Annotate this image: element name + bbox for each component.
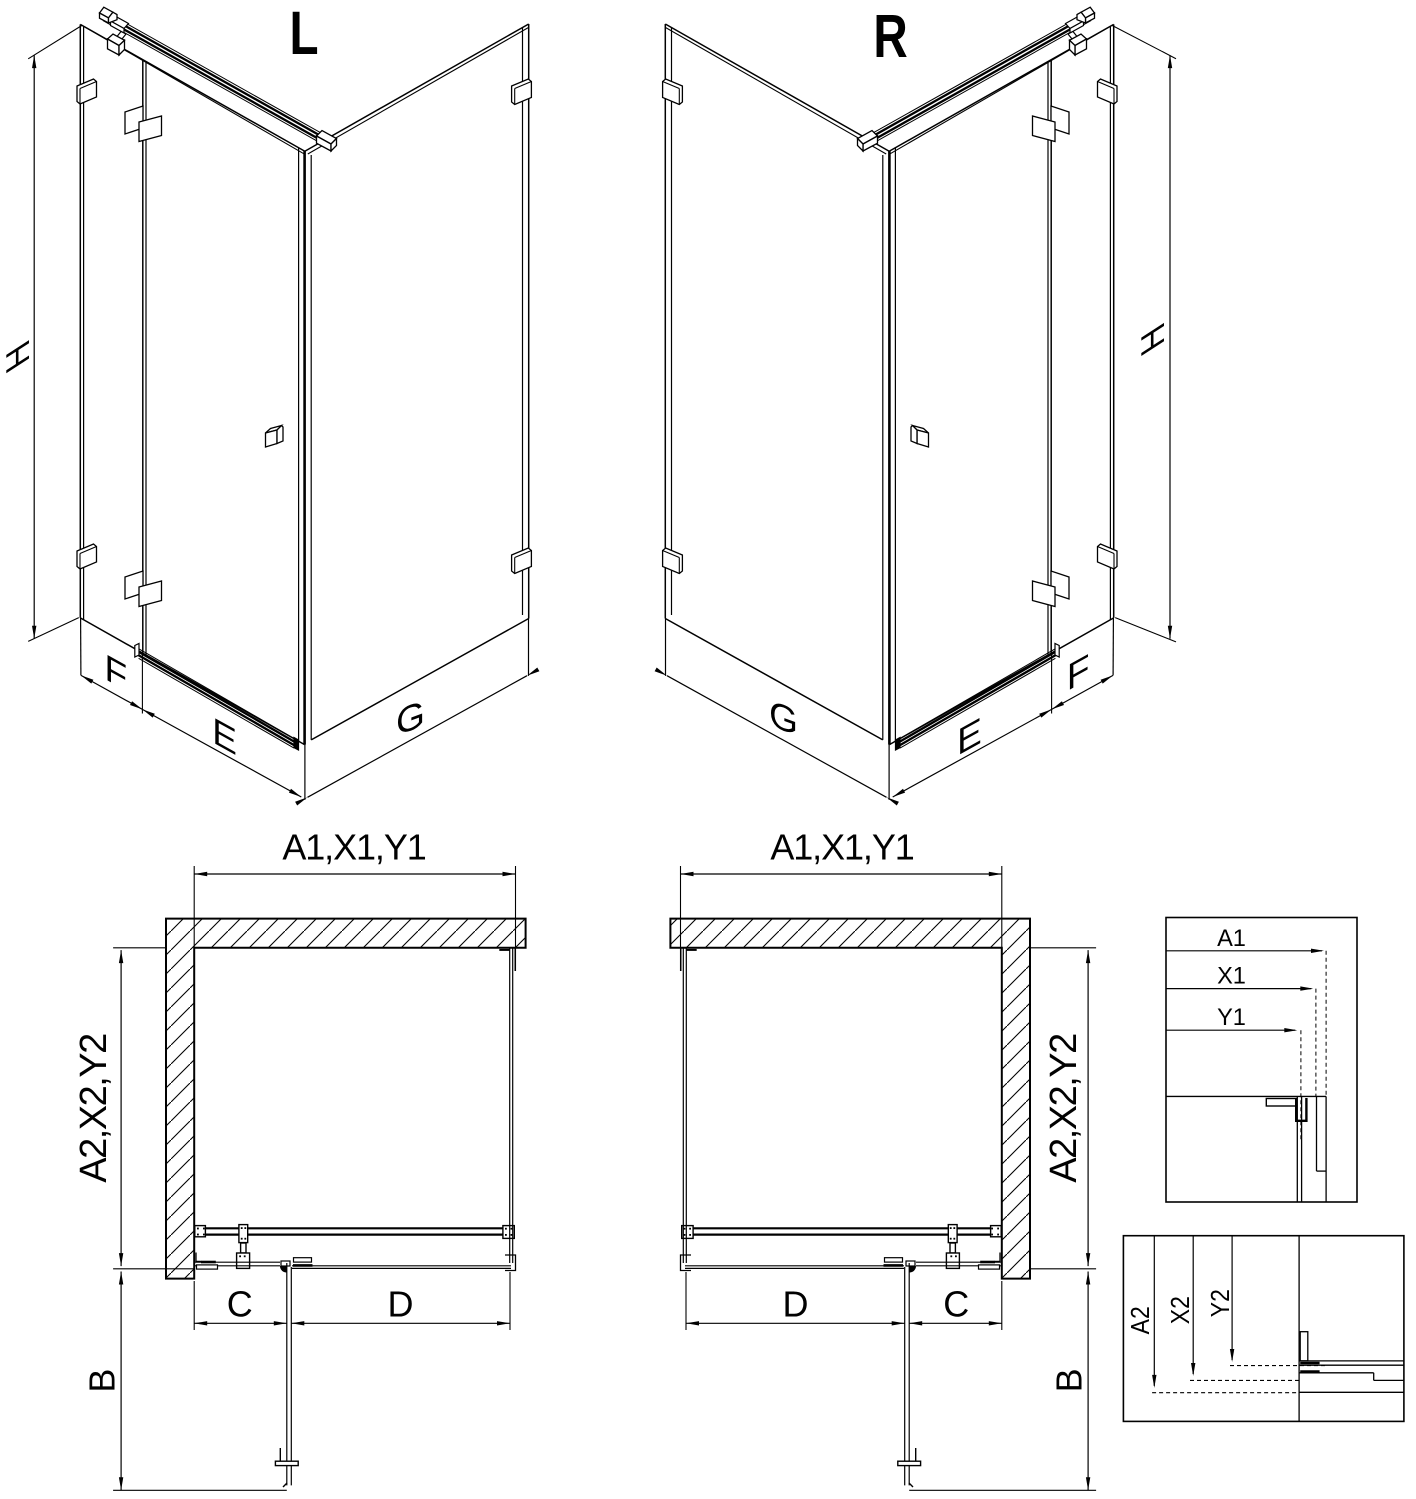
- svg-text:B: B: [1049, 1368, 1090, 1392]
- svg-text:X1: X1: [1217, 964, 1246, 990]
- svg-text:R: R: [873, 1, 907, 70]
- svg-text:C: C: [227, 1284, 253, 1325]
- svg-text:Y1: Y1: [1217, 1005, 1246, 1031]
- svg-text:A1,X1,Y1: A1,X1,Y1: [282, 826, 425, 867]
- svg-text:X2: X2: [1167, 1296, 1195, 1324]
- svg-text:A2,X2,Y2: A2,X2,Y2: [1043, 1034, 1085, 1183]
- svg-text:B: B: [82, 1369, 123, 1393]
- svg-text:C: C: [943, 1284, 969, 1325]
- svg-text:D: D: [388, 1284, 414, 1325]
- svg-text:L: L: [289, 0, 318, 67]
- svg-text:A1: A1: [1217, 926, 1246, 952]
- svg-text:A2: A2: [1127, 1306, 1155, 1334]
- svg-text:D: D: [783, 1284, 809, 1325]
- svg-text:A2,X2,Y2: A2,X2,Y2: [73, 1034, 115, 1183]
- svg-text:Y2: Y2: [1207, 1289, 1235, 1317]
- svg-text:A1,X1,Y1: A1,X1,Y1: [770, 826, 913, 867]
